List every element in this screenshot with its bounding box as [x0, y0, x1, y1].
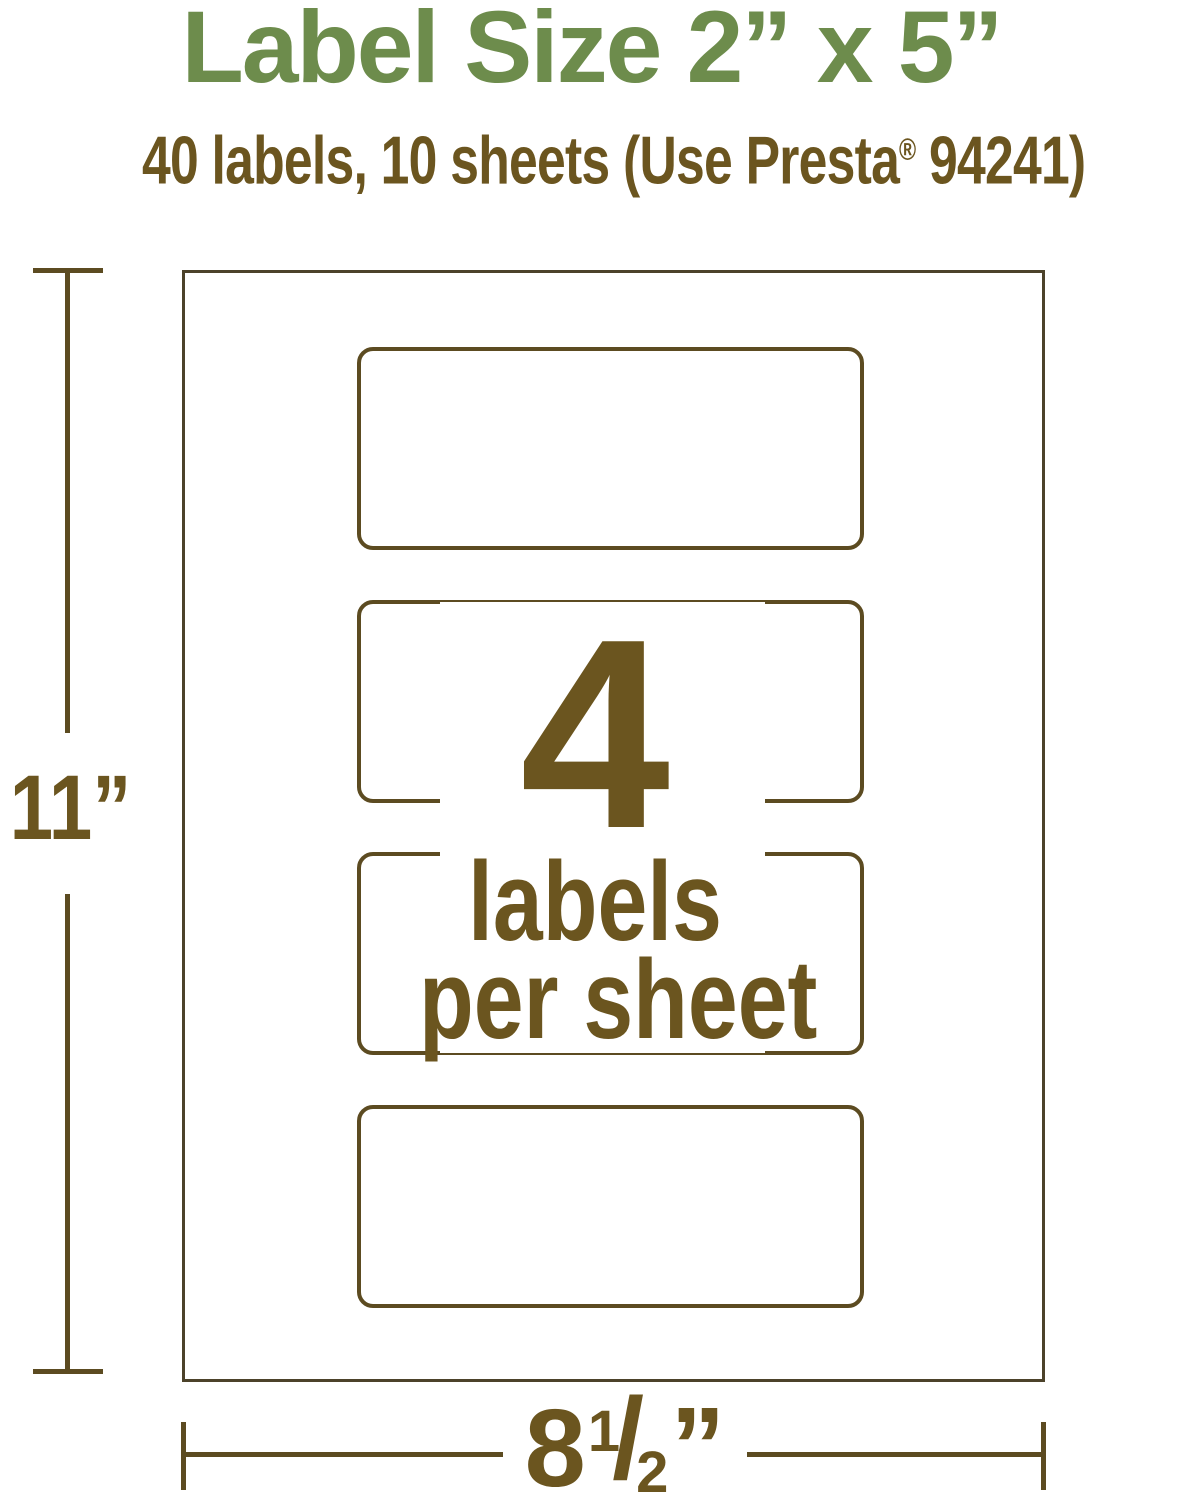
page-title: Label Size 2” x 5”	[0, 0, 1183, 98]
count-caption-line2: per sheet	[419, 950, 771, 1050]
width-dimension-right-tick	[1041, 1422, 1046, 1490]
page-subtitle: 40 labels, 10 sheets (Use Presta® 94241)	[142, 112, 1041, 199]
subtitle-prefix: 40 labels, 10 sheets (Use Presta	[142, 123, 899, 199]
width-dimension-line-left	[181, 1452, 503, 1457]
width-dimension-line-right	[747, 1452, 1046, 1457]
registered-trademark-mark: ®	[899, 133, 915, 167]
label-outline-4	[357, 1105, 864, 1308]
height-dimension-line-lower	[65, 894, 70, 1372]
labels-per-sheet-count: 4	[375, 610, 815, 860]
width-whole-number: 8	[525, 1387, 586, 1500]
height-dimension-line-upper	[65, 268, 70, 733]
label-outline-1	[357, 347, 864, 550]
height-dimension-bottom-tick	[33, 1369, 103, 1374]
subtitle-suffix: 94241)	[915, 123, 1085, 199]
product-diagram-page: Label Size 2” x 5” 40 labels, 10 sheets …	[0, 0, 1183, 1500]
width-dimension-label: 81/2”	[495, 1392, 755, 1500]
width-inch-mark: ”	[670, 1385, 725, 1500]
height-dimension-label: 11”	[10, 758, 119, 858]
width-fraction-denominator: 2	[636, 1440, 668, 1500]
